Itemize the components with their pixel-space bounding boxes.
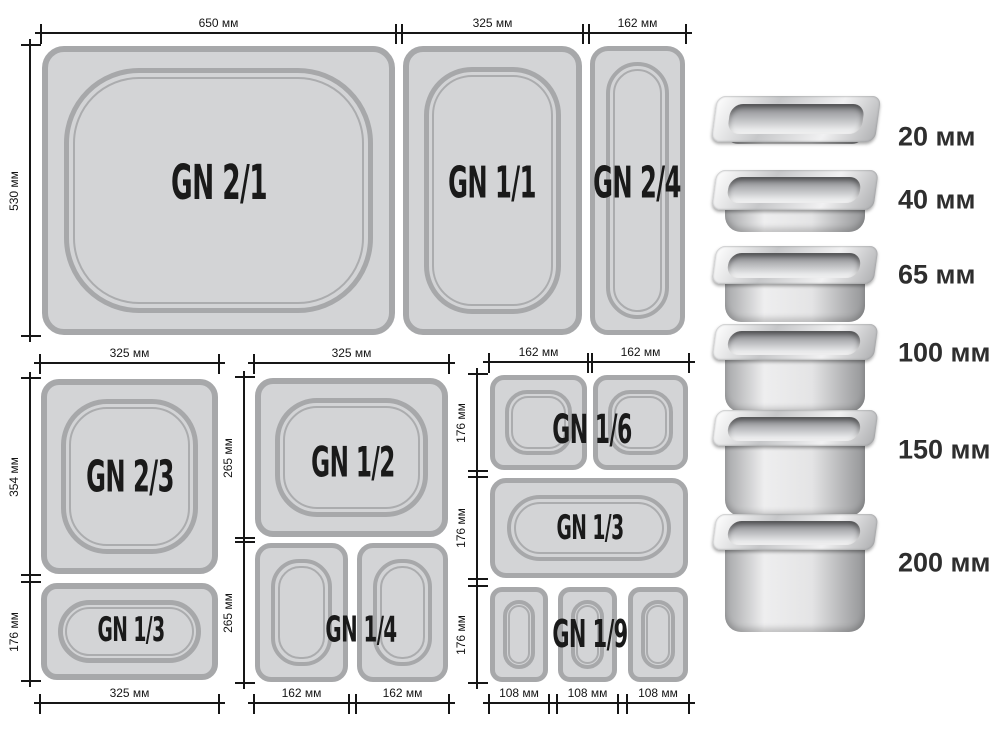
dim-162mm-g3-b2: 162 мм (350, 702, 455, 704)
dim-162mm-g4-t1: 162 мм (483, 361, 594, 363)
label-gn-2-4: GN 2/4 (593, 158, 681, 209)
label-gn-1-3-right: GN 1/3 (556, 508, 623, 548)
pan-opening (726, 417, 861, 441)
depth-pan-photo-150mm (712, 410, 884, 526)
depth-label-40mm: 40 мм (898, 185, 975, 216)
pan-gn-1-9-a (490, 587, 548, 682)
dim-162mm-g3-b1: 162 мм (248, 702, 355, 704)
depth-label-100mm: 100 мм (898, 338, 991, 369)
dim-162mm-top: 162 мм (583, 32, 692, 34)
pan-opening (726, 177, 862, 203)
depth-pan-photo-20mm (712, 96, 884, 158)
depth-pan-photo-100mm (712, 324, 884, 422)
dim-325mm-g2-top: 325 мм (34, 362, 225, 364)
dim-650mm: 650 мм (35, 32, 402, 34)
pan-opening (726, 253, 862, 278)
dim-325mm-g2-bottom: 325 мм (34, 702, 225, 704)
pan-inner-line (508, 605, 530, 664)
pan-inner-line (278, 566, 325, 659)
pan-gn-1-9-c (628, 587, 688, 682)
pan-opening (727, 104, 865, 134)
dim-325mm-top: 325 мм (396, 32, 589, 34)
label-gn-2-3: GN 2/3 (86, 452, 174, 503)
pan-body (725, 544, 865, 632)
dim-108mm-2: 108 мм (551, 702, 624, 704)
pan-opening (726, 521, 861, 545)
label-gn-1-2: GN 1/2 (311, 438, 395, 487)
depth-pan-photo-200mm (712, 514, 884, 642)
dim-176mm-g4-2: 176 мм (476, 471, 478, 585)
dim-354mm: 354 мм (29, 372, 31, 581)
depth-label-150mm: 150 мм (898, 435, 991, 466)
label-gn-2-1: GN 2/1 (171, 155, 267, 211)
gastronorm-size-diagram: 650 мм 325 мм 162 мм 530 мм GN 2/1 GN 1/… (0, 0, 998, 734)
dim-162mm-g4-t2: 162 мм (586, 361, 695, 363)
dim-176mm-g4-3: 176 мм (476, 580, 478, 689)
dim-265mm-1: 265 мм (243, 371, 245, 544)
label-gn-1-3-left: GN 1/3 (97, 610, 164, 650)
depth-label-200mm: 200 мм (898, 548, 991, 579)
label-gn-1-4: GN 1/4 (325, 610, 396, 651)
depth-pan-photo-65mm (712, 246, 884, 334)
pan-body (725, 354, 865, 412)
label-gn-1-6: GN 1/6 (552, 407, 631, 453)
dim-530mm: 530 мм (29, 39, 31, 342)
dim-176mm-g4-1: 176 мм (476, 368, 478, 477)
pan-opening (726, 331, 861, 355)
depth-pan-photo-40mm (712, 170, 884, 248)
dim-108mm-1: 108 мм (483, 702, 555, 704)
label-gn-1-1: GN 1/1 (448, 158, 536, 209)
label-gn-1-9: GN 1/9 (552, 612, 627, 656)
dim-108mm-3: 108 мм (621, 702, 695, 704)
dim-265mm-2: 265 мм (243, 536, 245, 689)
depth-label-65mm: 65 мм (898, 260, 975, 291)
dim-325mm-g3-top: 325 мм (248, 362, 455, 364)
dim-176mm-g2: 176 мм (29, 576, 31, 687)
depth-label-20mm: 20 мм (898, 122, 975, 153)
pan-inner-line (646, 605, 670, 664)
pan-body (725, 440, 865, 516)
